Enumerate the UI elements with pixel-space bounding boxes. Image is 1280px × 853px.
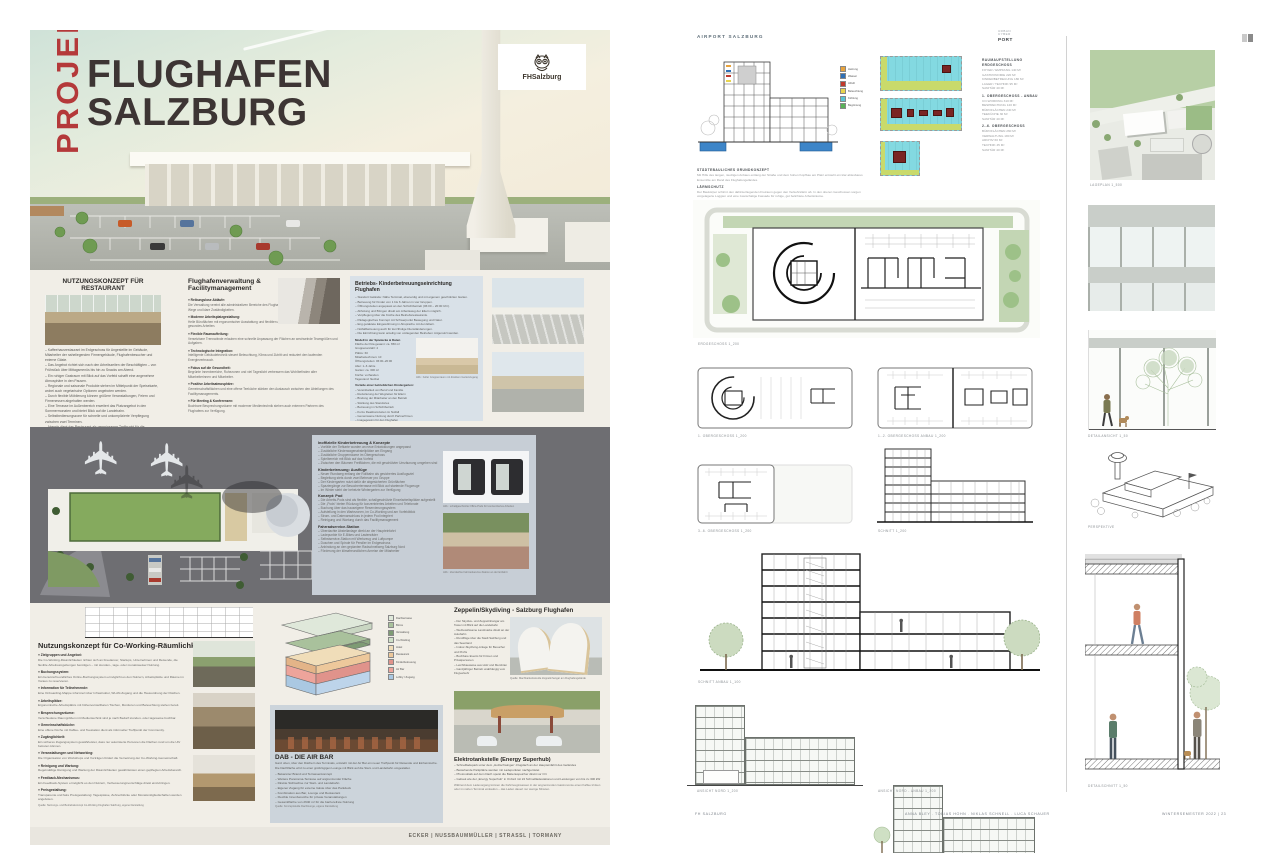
section-200 <box>875 445 1035 526</box>
legend-entry: Verwaltung <box>388 630 440 636</box>
legend-label: Kinderbetreuung <box>396 661 416 664</box>
room-program: RAUMAUFSTELLUNG ERDGESCHOSSFOYER / EMPFA… <box>982 58 1062 155</box>
facade-detail <box>1088 205 1215 311</box>
grid-icon <box>1242 34 1253 42</box>
coworking-photo-1 <box>193 641 255 687</box>
restaurant-photo <box>45 295 161 345</box>
person-with-dog-icon <box>1097 392 1131 428</box>
caption-ansicht-nord: ANSICHT NORD 1_200 <box>697 789 738 793</box>
legend-color-chip <box>388 637 394 643</box>
kinderbetreuung-bullets: – Standort Gelände: Nähe Terminal, ebene… <box>355 295 478 336</box>
legend-label: Co-Working <box>396 639 410 642</box>
legend-label: Abluft <box>848 82 855 85</box>
massing-diagram-1 <box>880 56 962 91</box>
contrail <box>243 30 467 51</box>
legend-color-chip <box>388 659 394 665</box>
legend-entry: Büros <box>388 622 440 628</box>
kinderbetreuung-heading: Betriebs- Kinderbetreuungseinrichtung Fl… <box>355 281 478 293</box>
title-line1: FLUGHAFEN <box>87 56 332 94</box>
section-anbau <box>700 548 1040 676</box>
caption-ansicht-nord-anbau: ANSICHT NORD - ANBAU 1_200 <box>878 789 936 793</box>
airbar-note: Quelle: Konzeptstudie Dachlounge, eigene… <box>275 805 438 808</box>
legend-color-chip <box>388 652 394 658</box>
right-footer-names: ANNA BLEY . TOBIAS HOHN . NIKLAS SCHNELL… <box>905 812 1050 816</box>
site-concept-groups: Inoffizielle Kinderbetreuung & Konzepte–… <box>318 441 446 553</box>
etank-photo <box>454 691 600 753</box>
legend-entry: Hotel <box>388 645 440 651</box>
coworking-section: Nutzungskonzept für Co-Working-Räumlichk… <box>38 641 188 807</box>
poster-right: AIRPORT SALZBURG <box>680 28 1265 830</box>
coworking-blocks: » Zielgruppen und Angebot:Die Co-Working… <box>38 653 186 802</box>
exploded-axon-diagram <box>270 609 378 701</box>
axon-diagram-area: DachterrasseBürosVerwaltungCo-WorkingHot… <box>270 609 440 701</box>
caption-schnitt-anbau: SCHNITT ANBAU 1_100 <box>698 680 741 684</box>
legend-label: Heizung <box>848 68 858 71</box>
airbar-photo <box>275 710 438 752</box>
legend-color-chip <box>388 615 394 621</box>
poster-wall: PROJEKT FLUGHAFEN SALZBURG FHS <box>0 0 1280 853</box>
legend-color-chip <box>388 630 394 636</box>
legend-label: Kühlung <box>848 97 858 100</box>
fh-logo-text: FHSalzburg <box>523 74 562 81</box>
pods-caption: Abb.: schallgeschützte Office-Pods für k… <box>443 505 529 508</box>
legend-entry: Heizung <box>840 66 880 72</box>
kinderbetreuung-photo-caption: Abb.: heller Gruppenraum mit direktem Ga… <box>416 376 478 379</box>
coworking-photo-3 <box>193 755 255 801</box>
legend-color-chip <box>388 622 394 628</box>
axon-legend: DachterrasseBürosVerwaltungCo-WorkingHot… <box>388 615 440 682</box>
tree-sketch <box>1123 344 1213 428</box>
section-concepts: NUTZUNGSKONZEPT FÜR RESTAURANT – Kaffeeh… <box>30 272 610 425</box>
floorplan-og36 <box>695 462 855 526</box>
coworking-source: Quelle: Nutzungs- und Betriebskonzept Co… <box>38 804 186 807</box>
caption-detailschnitt: DETAILSCHNITT 1_50 <box>1088 784 1128 788</box>
render-column <box>492 278 584 412</box>
massing-diagram-2 <box>880 98 962 131</box>
legend-color-chip <box>840 81 846 87</box>
shelter-photo <box>443 513 529 569</box>
parking-lot <box>30 198 460 270</box>
right-page-title: AIRPORT SALZBURG <box>697 34 764 39</box>
legend-color-chip <box>840 66 846 72</box>
legend-entry: Dachterrasse <box>388 615 440 621</box>
caption-og36: 3.-6. OBERGESCHOSS 1_200 <box>698 529 752 533</box>
legend-label: Lobby / Zugang <box>396 676 415 679</box>
zeppelin-heading: Zeppelin/Skydiving - Salzburg Flughafen <box>454 607 602 614</box>
mep-legend: HeizungWasserAbluftBeleuchtungKühlungBeg… <box>840 66 880 110</box>
restaurant-section: NUTZUNGSKONZEPT FÜR RESTAURANT – Kaffeeh… <box>45 278 161 435</box>
legend-label: Restaurant <box>396 653 409 656</box>
render-photo-2 <box>492 352 584 412</box>
legend-entry: Abluft <box>840 81 880 87</box>
zeppelin-section: Zeppelin/Skydiving - Salzburg Flughafen … <box>454 607 602 614</box>
elevation-strip <box>85 607 253 638</box>
facility-photo <box>278 278 340 324</box>
title-projekt: PROJEKT <box>52 56 83 154</box>
elevation-nord-anbau <box>875 785 1035 853</box>
caption-eg: ERDGESCHOSS 1_200 <box>698 342 739 346</box>
pods-photo <box>443 451 529 503</box>
caption-schnitt: SCHNITT 1_200 <box>878 529 907 533</box>
left-footer-credits: ECKER | NUSSBAUMMÜLLER | STRASSL | TORMA… <box>409 833 562 839</box>
facility-section: Flughafenverwaltung & Facilitymanagement… <box>188 278 340 416</box>
legend-entry: Restaurant <box>388 652 440 658</box>
restaurant-text: – Kaffeehausrestaurant im Erdgeschoss fü… <box>45 348 161 435</box>
legend-color-chip <box>388 645 394 651</box>
massing-diagram-3 <box>880 141 920 176</box>
elevation-nord <box>695 705 855 785</box>
legend-color-chip <box>840 96 846 102</box>
legend-entry: Lobby / Zugang <box>388 674 440 680</box>
tree-small <box>873 821 891 853</box>
airbar-panel: DAB - DIE AIR BAR Ganz oben, über den Dä… <box>270 705 443 823</box>
kinderbetreuung-panel: Betriebs- Kinderbetreuungseinrichtung Fl… <box>350 276 483 421</box>
legend-color-chip <box>840 103 846 109</box>
poster-title: PROJEKT FLUGHAFEN SALZBURG <box>52 56 332 154</box>
vorteile-list: – Vereinbarkeit von Beruf und Familie – … <box>355 388 478 423</box>
section-diagram <box>698 54 838 158</box>
fh-salzburg-logo: FHSalzburg <box>498 44 586 90</box>
column-divider <box>1066 36 1067 792</box>
legend-label: Beleuchtung <box>848 90 863 93</box>
legend-entry: Air Bar <box>388 667 440 673</box>
legend-entry: Wasser <box>840 73 880 79</box>
right-footer-school: FH SALZBURG <box>695 812 727 816</box>
caption-og12: 1.-2. OBERGESCHOSS ANBAU 1_200 <box>878 434 946 438</box>
perspective-sketch <box>1085 445 1217 521</box>
ucp-logo: URBAN CYBER PORT <box>998 30 1013 42</box>
detail-elevation <box>1088 330 1216 430</box>
airbar-heading: DAB - DIE AIR BAR <box>275 754 438 761</box>
caption-lageplan: LAGEPLAN 1_500 <box>1090 183 1122 187</box>
siteplan-figure <box>1090 50 1215 180</box>
restaurant-heading: NUTZUNGSKONZEPT FÜR RESTAURANT <box>45 278 161 292</box>
floorplan-og12 <box>875 365 1035 431</box>
legend-label: Hotel <box>396 646 402 649</box>
kinderbetreuung-photo <box>416 338 478 374</box>
airplane-icon: ✈ <box>144 441 190 480</box>
shelter-caption: Abb.: überdachte Fahrradservice-Station … <box>443 571 529 574</box>
floorplan-eg <box>693 200 1040 338</box>
legend-entry: Kühlung <box>840 96 880 102</box>
left-footer: ECKER | NUSSBAUMMÜLLER | STRASSL | TORMA… <box>30 827 610 845</box>
airbar-para: Ganz oben, über den Dächern des Terminal… <box>275 761 438 770</box>
airbar-bullets: – Bekannter Brand und Terrassenkonzept –… <box>275 772 438 804</box>
caption-perspektive: PERSPEKTIVE <box>1088 525 1115 529</box>
legend-label: Dachterrasse <box>396 617 412 620</box>
legend-color-chip <box>388 667 394 673</box>
legend-label: Begrünung <box>848 104 861 107</box>
zeppelin-bullets: – Der Skydive- und Zeppelinhangar am Tow… <box>454 619 510 676</box>
zeppelin-caption: Quelle: Machbarkeitsstudie Zeppelinhanga… <box>510 677 602 680</box>
legend-label: Verwaltung <box>396 631 409 634</box>
coworking-photo-2 <box>193 693 255 749</box>
etank-para: Während dem Ladevorgang können die Fahrz… <box>454 783 602 792</box>
right-footer-semester: WINTERSEMESTER 2022 | 23 <box>1162 812 1226 816</box>
legend-label: Büros <box>396 624 403 627</box>
airplane-icon: ✈ <box>78 439 124 478</box>
legend-color-chip <box>388 674 394 680</box>
legend-entry: Begrünung <box>840 103 880 109</box>
legend-color-chip <box>840 88 846 94</box>
kinderbetreuung-table: Fläche der Kita gesamt: ca. 650 m² Grupp… <box>355 342 413 381</box>
section-siteplan: ✈ ✈ ✈ Inoffizielle Kinderbetreuung & Kon… <box>30 427 610 603</box>
caption-detailansicht: DETAILANSICHT 1_50 <box>1088 434 1128 438</box>
zeppelin-photo <box>510 617 602 675</box>
title-line2: SALZBURG <box>87 94 332 132</box>
legend-entry: Beleuchtung <box>840 88 880 94</box>
render-photo-1 <box>492 278 584 344</box>
etank-bullets: – Schnellladepark unter dem „Holzschwing… <box>454 763 602 781</box>
poster-left: PROJEKT FLUGHAFEN SALZBURG FHS <box>30 30 610 845</box>
detail-section <box>1085 545 1220 780</box>
legend-label: Air Bar <box>396 668 404 671</box>
facility-heading: Flughafenverwaltung & Facilitymanagement <box>188 278 274 292</box>
floorplan-og1 <box>695 365 855 431</box>
legend-color-chip <box>840 73 846 79</box>
legend-entry: Co-Working <box>388 637 440 643</box>
legend-entry: Kinderbetreuung <box>388 659 440 665</box>
caption-og1: 1. OBERGESCHOSS 1_200 <box>698 434 747 438</box>
hero-render: PROJEKT FLUGHAFEN SALZBURG FHS <box>30 30 610 270</box>
owl-icon <box>533 54 551 74</box>
legend-label: Wasser <box>848 75 857 78</box>
site-concept-panel: Inoffizielle Kinderbetreuung & Konzepte–… <box>312 435 536 595</box>
section-bottom: Nutzungskonzept für Co-Working-Räumlichk… <box>30 605 610 827</box>
coworking-photos <box>193 641 255 801</box>
